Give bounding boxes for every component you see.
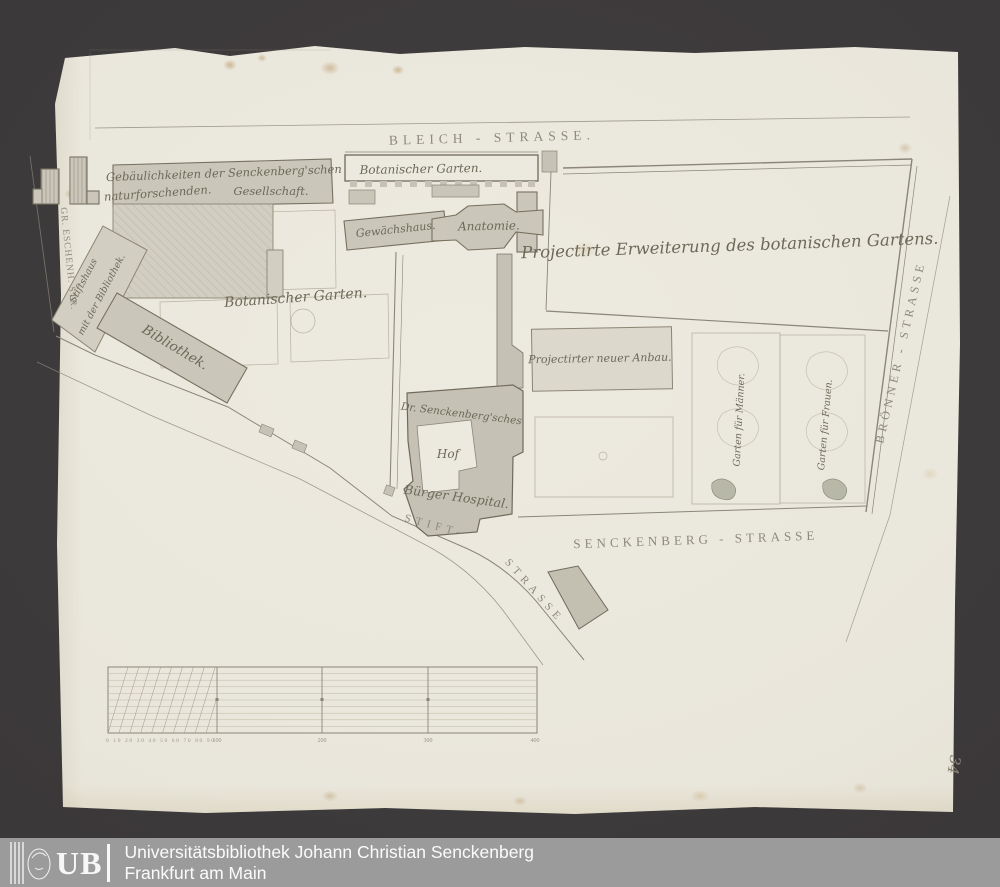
street-label-broennerstrasse: BRÖNNER - STRASSE <box>872 260 928 445</box>
footer-text-block: Universitätsbibliothek Johann Christian … <box>124 842 534 884</box>
label-garten-maenner: Garten für Männer. <box>732 373 748 467</box>
scale-label-300: 300 <box>424 738 433 744</box>
label-erweiterung: Projectirte Erweiterung des botanischen … <box>520 229 939 263</box>
scale-midpoints <box>216 698 430 701</box>
label-anatomie: Anatomie. <box>457 218 520 233</box>
logo-portrait-icon <box>8 840 54 886</box>
map-drawing: 0 10 20 30 40 50 60 70 80 90 100 200 300… <box>0 0 1000 830</box>
street-step-structure <box>259 424 274 437</box>
outbuilding <box>432 185 479 197</box>
extension-west-boundary <box>546 172 551 310</box>
scan-viewport: 0 10 20 30 40 50 60 70 80 90 100 200 300… <box>0 0 1000 887</box>
building-corner-towers <box>33 157 99 204</box>
extension-bed-center <box>599 452 607 460</box>
outbuilding <box>349 190 375 204</box>
handwritten-page-number: 34 <box>943 754 964 776</box>
street-step-structure <box>292 440 307 453</box>
gate-building <box>542 151 557 172</box>
footer-library-city: Frankfurt am Main <box>124 863 534 884</box>
street-label-stift-strasse: STRASSE <box>502 556 566 625</box>
scale-minor-ticks: 0 10 20 30 40 50 60 70 80 90 <box>106 738 214 744</box>
bleichstrasse-north-edge <box>95 117 910 128</box>
street-label-senckenbergstrasse: SENCKENBERG - STRASSE <box>573 528 818 552</box>
library-footer: UB Universitätsbibliothek Johann Christi… <box>0 838 1000 887</box>
garden-ponds <box>712 479 847 500</box>
garden-round-bed <box>291 309 315 333</box>
logo-divider-bar <box>107 844 110 882</box>
scale-label-100: 100 <box>213 738 222 744</box>
label-garten-frauen: Garten für Frauen. <box>816 379 835 471</box>
scale-label-200: 200 <box>318 738 327 744</box>
senckenbergstrasse-north-edge <box>518 506 866 517</box>
footer-library-name: Universitätsbibliothek Johann Christian … <box>124 842 534 863</box>
buildings <box>33 151 673 629</box>
label-gesellschaft-3: Gesellschaft. <box>233 184 308 198</box>
library-logo: UB <box>8 840 110 886</box>
logo-ub-text: UB <box>56 840 102 886</box>
building-wall-strip <box>497 254 523 388</box>
label-hof: Hof <box>436 447 462 461</box>
garden-gate <box>384 485 396 497</box>
garden-east-boundary-inner <box>397 255 403 489</box>
building-gesellschaft-annex <box>267 250 283 297</box>
label-garden-house-top: Botanischer Garten. <box>358 161 482 177</box>
broennerstrasse-west-edge-inner <box>872 166 917 514</box>
scale-bar: 0 10 20 30 40 50 60 70 80 90 100 200 300… <box>106 667 540 744</box>
label-neuer-anbau: Projectirter neuer Anbau. <box>527 351 672 367</box>
extension-bed <box>535 417 673 497</box>
scale-label-400: 400 <box>531 738 540 744</box>
street-label-bleichstrasse: BLEICH - STRASSE. <box>389 127 595 147</box>
garden-east-boundary <box>390 252 396 490</box>
